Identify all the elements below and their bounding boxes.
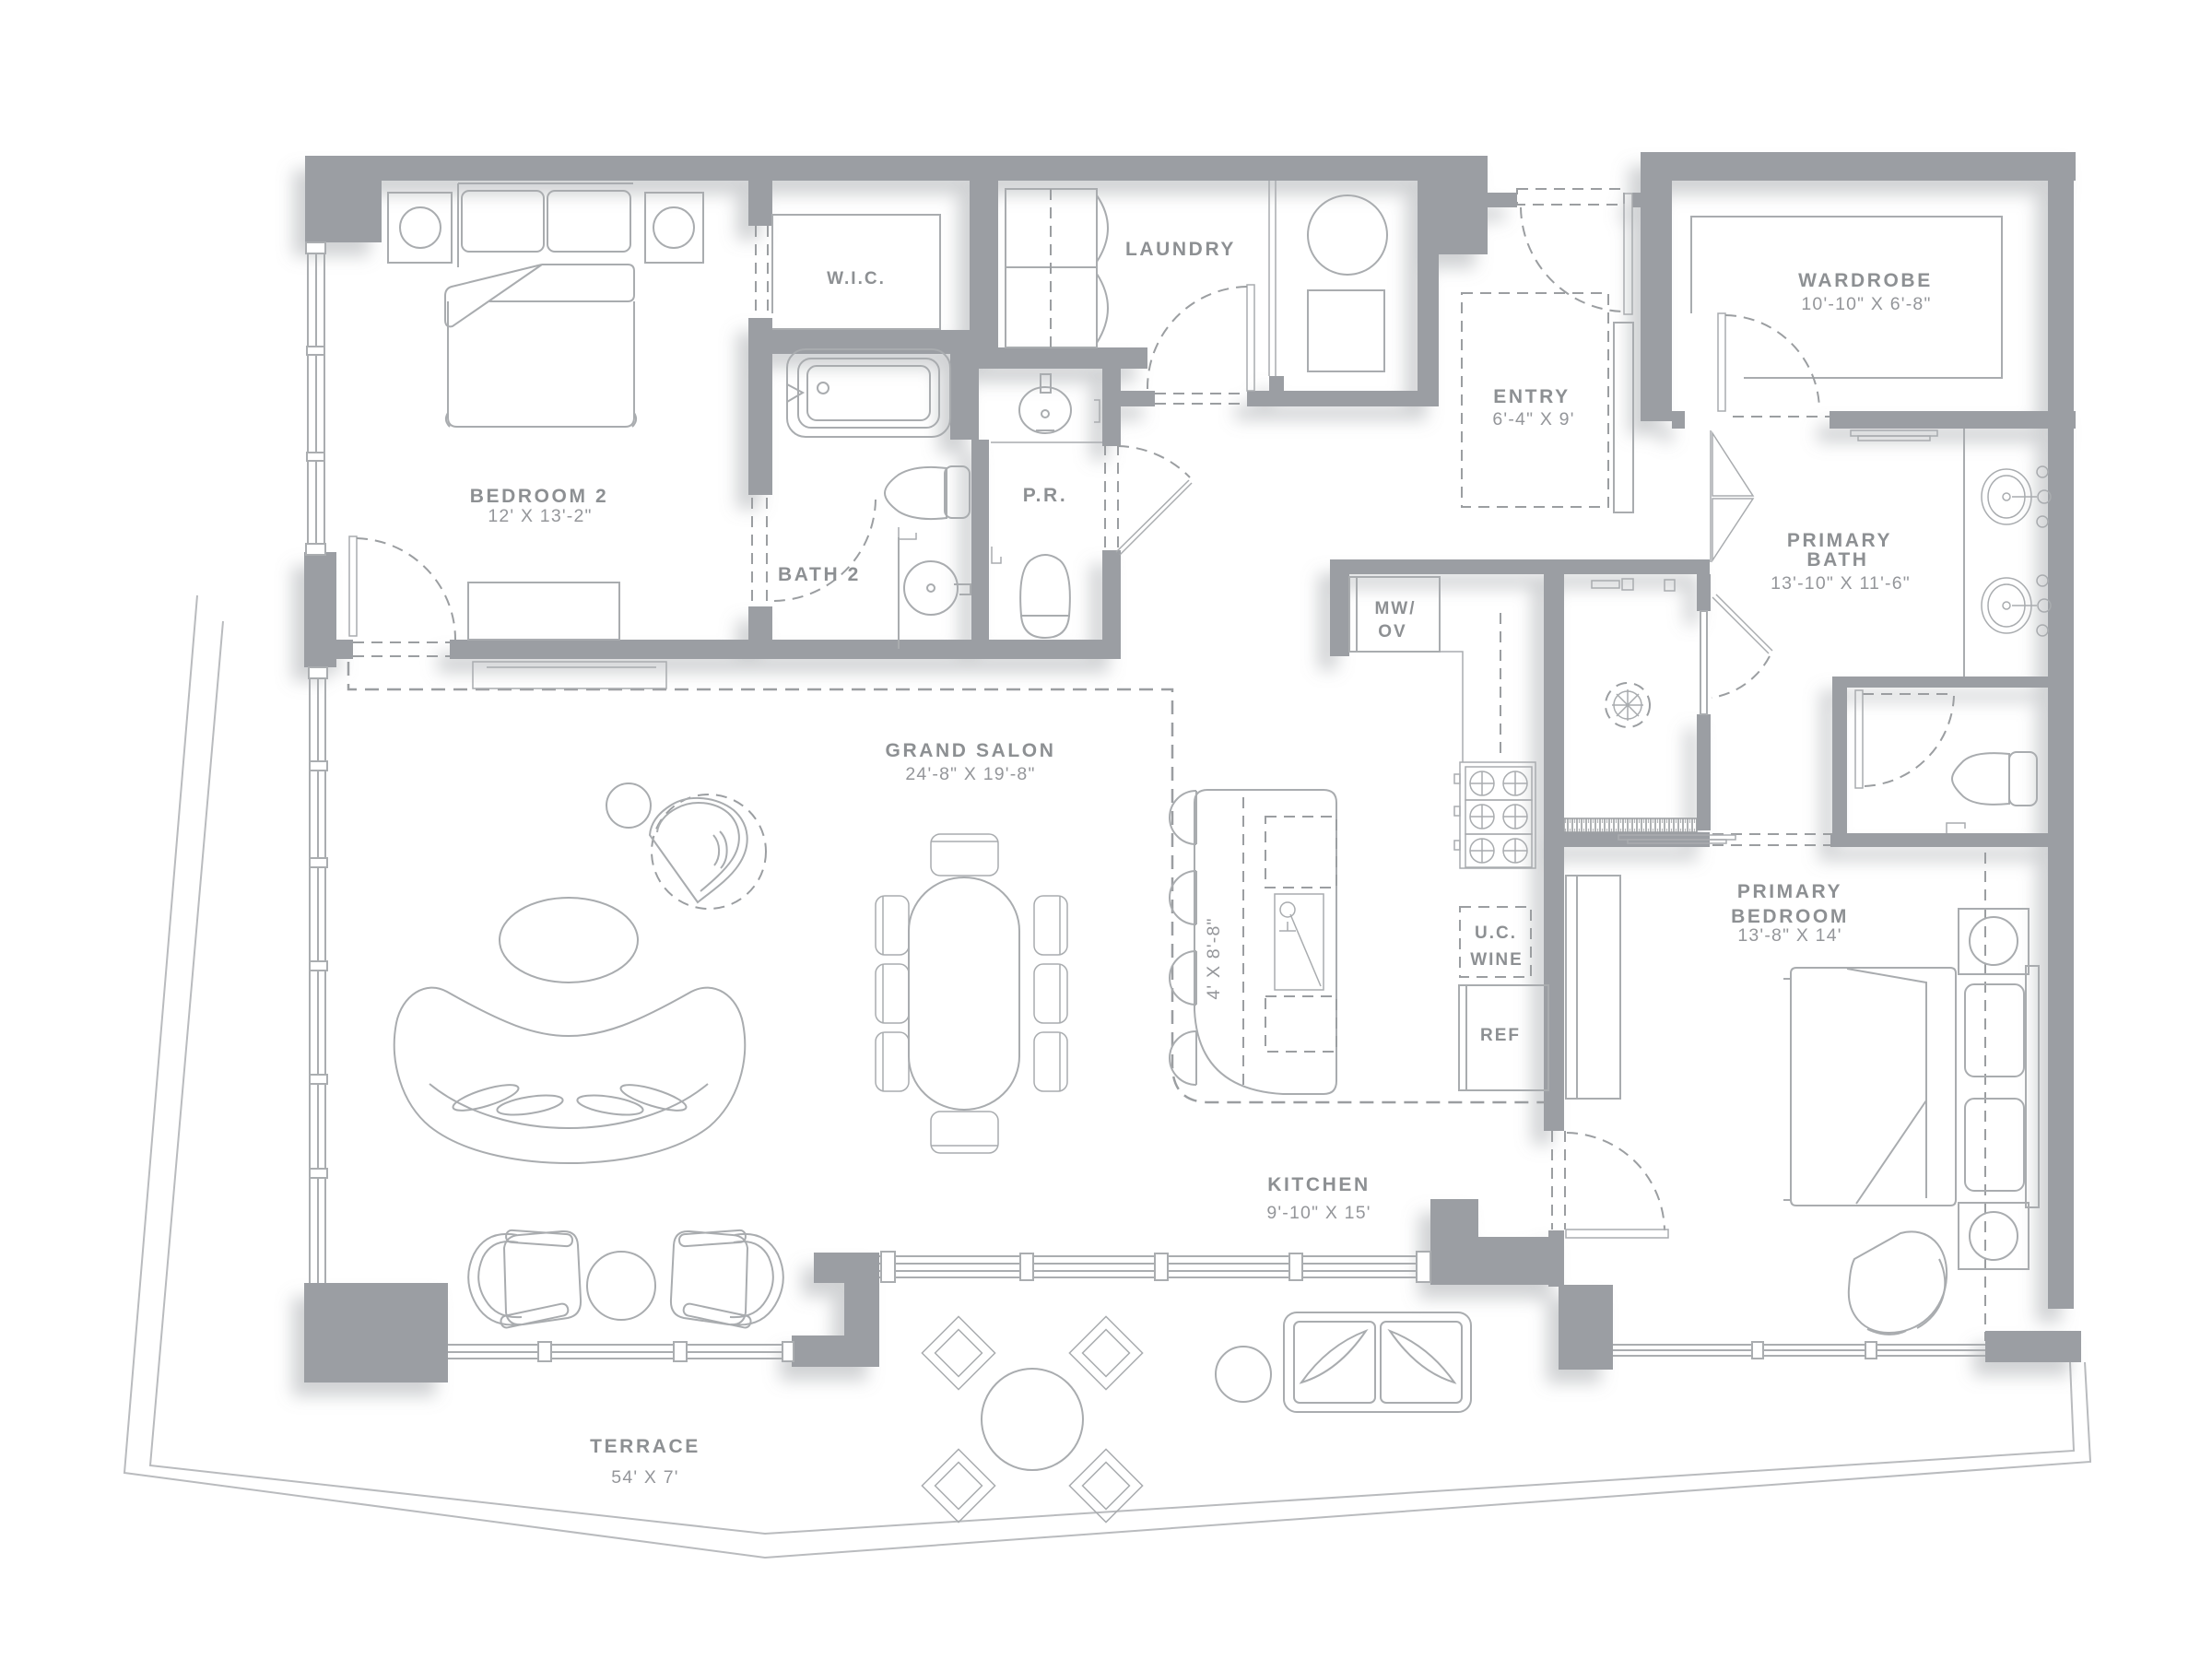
svg-text:BEDROOM: BEDROOM bbox=[1731, 906, 1849, 927]
svg-text:MW/: MW/ bbox=[1374, 599, 1416, 618]
svg-text:54' X 7': 54' X 7' bbox=[611, 1467, 678, 1488]
svg-text:KITCHEN: KITCHEN bbox=[1267, 1174, 1371, 1195]
svg-text:BATH 2: BATH 2 bbox=[778, 564, 861, 585]
svg-text:BATH: BATH bbox=[1806, 549, 1868, 571]
svg-text:PRIMARY: PRIMARY bbox=[1787, 530, 1892, 551]
svg-text:12' X 13'-2": 12' X 13'-2" bbox=[488, 506, 592, 526]
svg-text:REF: REF bbox=[1480, 1026, 1521, 1045]
svg-text:WINE: WINE bbox=[1470, 950, 1524, 970]
svg-text:TERRACE: TERRACE bbox=[590, 1436, 700, 1457]
svg-text:BEDROOM 2: BEDROOM 2 bbox=[470, 486, 609, 507]
svg-text:WARDROBE: WARDROBE bbox=[1798, 270, 1933, 291]
svg-text:10'-10" X 6'-8": 10'-10" X 6'-8" bbox=[1801, 294, 1931, 314]
svg-text:6'-4" X 9': 6'-4" X 9' bbox=[1492, 409, 1574, 429]
svg-text:W.I.C.: W.I.C. bbox=[827, 269, 886, 288]
svg-text:13'-8" X 14': 13'-8" X 14' bbox=[1737, 925, 1841, 946]
svg-text:LAUNDRY: LAUNDRY bbox=[1125, 239, 1236, 260]
svg-text:24'-8" X 19'-8": 24'-8" X 19'-8" bbox=[905, 764, 1035, 784]
svg-text:13'-10" X 11'-6": 13'-10" X 11'-6" bbox=[1771, 573, 1911, 594]
svg-text:OV: OV bbox=[1378, 622, 1406, 641]
svg-text:GRAND SALON: GRAND SALON bbox=[886, 740, 1056, 761]
svg-text:P.R.: P.R. bbox=[1023, 485, 1068, 506]
svg-text:U.C.: U.C. bbox=[1475, 924, 1517, 943]
svg-text:4' X 8'-8": 4' X 8'-8" bbox=[1204, 917, 1224, 999]
svg-text:ENTRY: ENTRY bbox=[1493, 386, 1570, 407]
svg-text:9'-10" X 15': 9'-10" X 15' bbox=[1266, 1203, 1371, 1223]
svg-text:PRIMARY: PRIMARY bbox=[1737, 881, 1842, 902]
